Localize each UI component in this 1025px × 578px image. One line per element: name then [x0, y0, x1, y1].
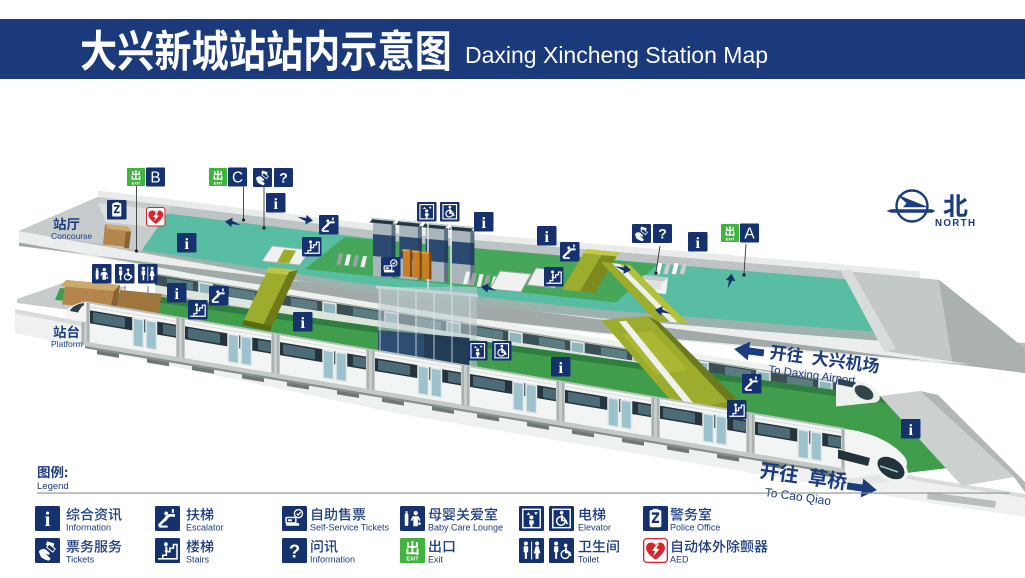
svg-text:Stairs: Stairs: [186, 555, 210, 565]
svg-text:Concourse: Concourse: [51, 231, 92, 241]
svg-text:Exit: Exit: [428, 555, 444, 565]
svg-text:Information: Information: [66, 523, 111, 533]
svg-text:Information: Information: [310, 555, 355, 565]
svg-text:Self-Service Tickets: Self-Service Tickets: [310, 523, 390, 533]
svg-text:Tickets: Tickets: [66, 555, 95, 565]
svg-text:Legend: Legend: [37, 481, 69, 492]
svg-text:Escalator: Escalator: [186, 523, 224, 533]
svg-text:Baby Care Lounge: Baby Care Lounge: [428, 523, 503, 533]
svg-text:Toilet: Toilet: [578, 555, 600, 565]
svg-text:NORTH: NORTH: [935, 218, 976, 229]
svg-text:Police Office: Police Office: [670, 523, 720, 533]
svg-text:Elevator: Elevator: [578, 523, 611, 533]
svg-text:AED: AED: [670, 555, 689, 565]
svg-text:Daxing Xincheng Station Map: Daxing Xincheng Station Map: [465, 42, 768, 68]
svg-text:Platform: Platform: [51, 339, 83, 349]
svg-text:To Cao Qiao: To Cao Qiao: [764, 485, 832, 508]
